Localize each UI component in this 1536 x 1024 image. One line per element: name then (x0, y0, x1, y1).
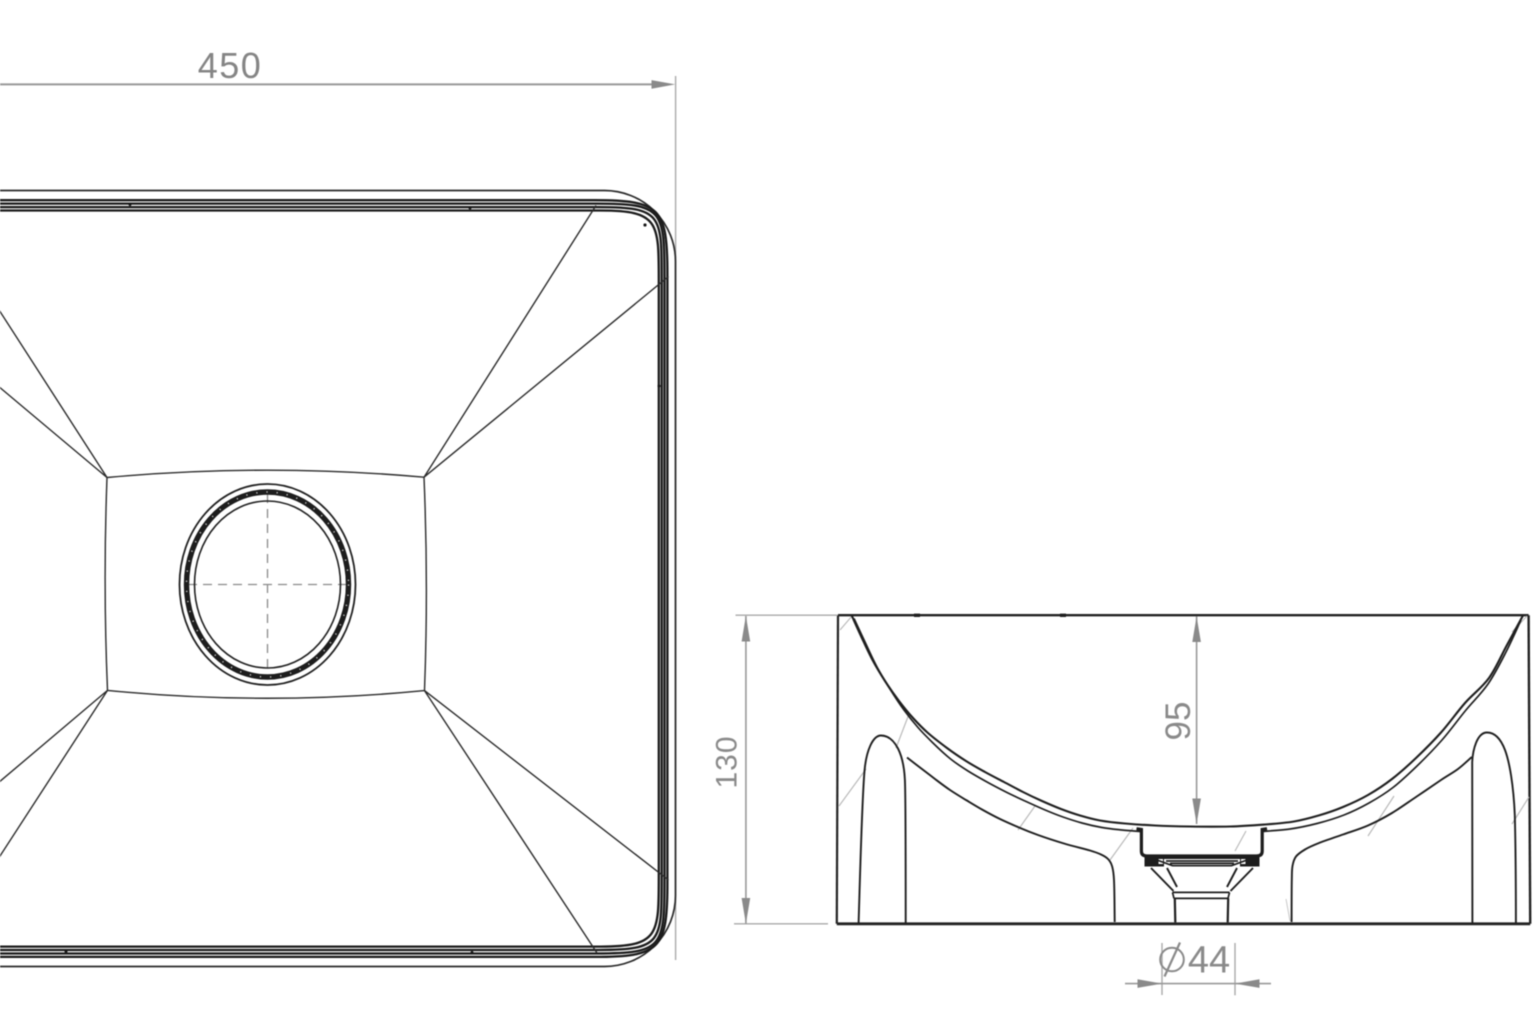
svg-text:95: 95 (1159, 702, 1198, 741)
svg-text:130: 130 (711, 735, 744, 788)
svg-text:450: 450 (198, 45, 263, 86)
svg-text:44: 44 (1188, 940, 1230, 982)
